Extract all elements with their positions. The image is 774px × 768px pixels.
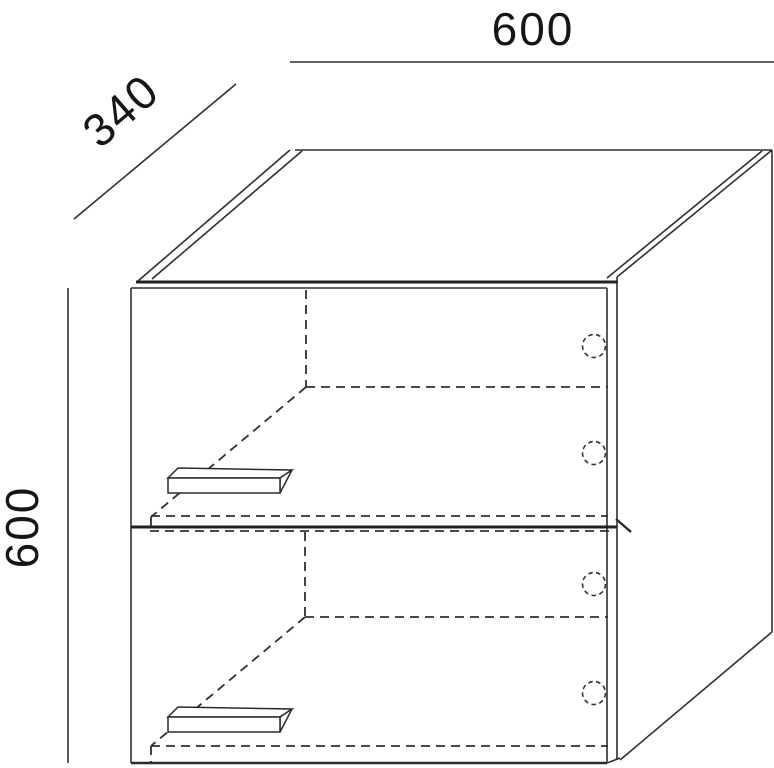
- cabinet-side-panel: [607, 150, 772, 763]
- lower-door-handle: [168, 707, 292, 732]
- side-panel-bottom-edge: [620, 632, 772, 760]
- hidden-bottom-side-edge: [151, 387, 306, 517]
- hinge-positions: [583, 335, 606, 705]
- hinge-circle-upper-door-top: [583, 335, 606, 358]
- top-panel-right-outer-edge: [617, 150, 772, 277]
- dimension-height-label: 600: [0, 486, 48, 569]
- hinge-circle-lower-door-bottom: [583, 682, 606, 705]
- upper-door-handle: [168, 468, 292, 493]
- top-panel-left-inner-edge: [152, 151, 302, 279]
- top-panel-left-outer-edge: [138, 150, 290, 281]
- cabinet-top-panel: [136, 150, 772, 282]
- dimension-height: 600: [0, 288, 68, 763]
- hinge-circle-lower-door-top: [583, 573, 606, 596]
- hinge-circle-upper-door-bottom: [583, 442, 606, 465]
- dimension-depth-label: 340: [72, 64, 169, 158]
- dimension-depth: 340: [72, 64, 236, 219]
- handle-top-face: [168, 468, 292, 478]
- divider-side-tick: [616, 519, 631, 532]
- cabinet-technical-drawing: 600 340 600: [0, 0, 774, 768]
- handle-front-face: [168, 478, 280, 493]
- handle-top-face: [168, 707, 292, 717]
- handle-front-face: [168, 717, 280, 732]
- dimension-width-label: 600: [492, 3, 575, 55]
- dimension-width: 600: [290, 3, 774, 62]
- top-panel-right-inner-edge: [607, 151, 762, 278]
- side-panel-bottom-corner: [607, 758, 620, 763]
- cabinet-doors: [131, 288, 631, 763]
